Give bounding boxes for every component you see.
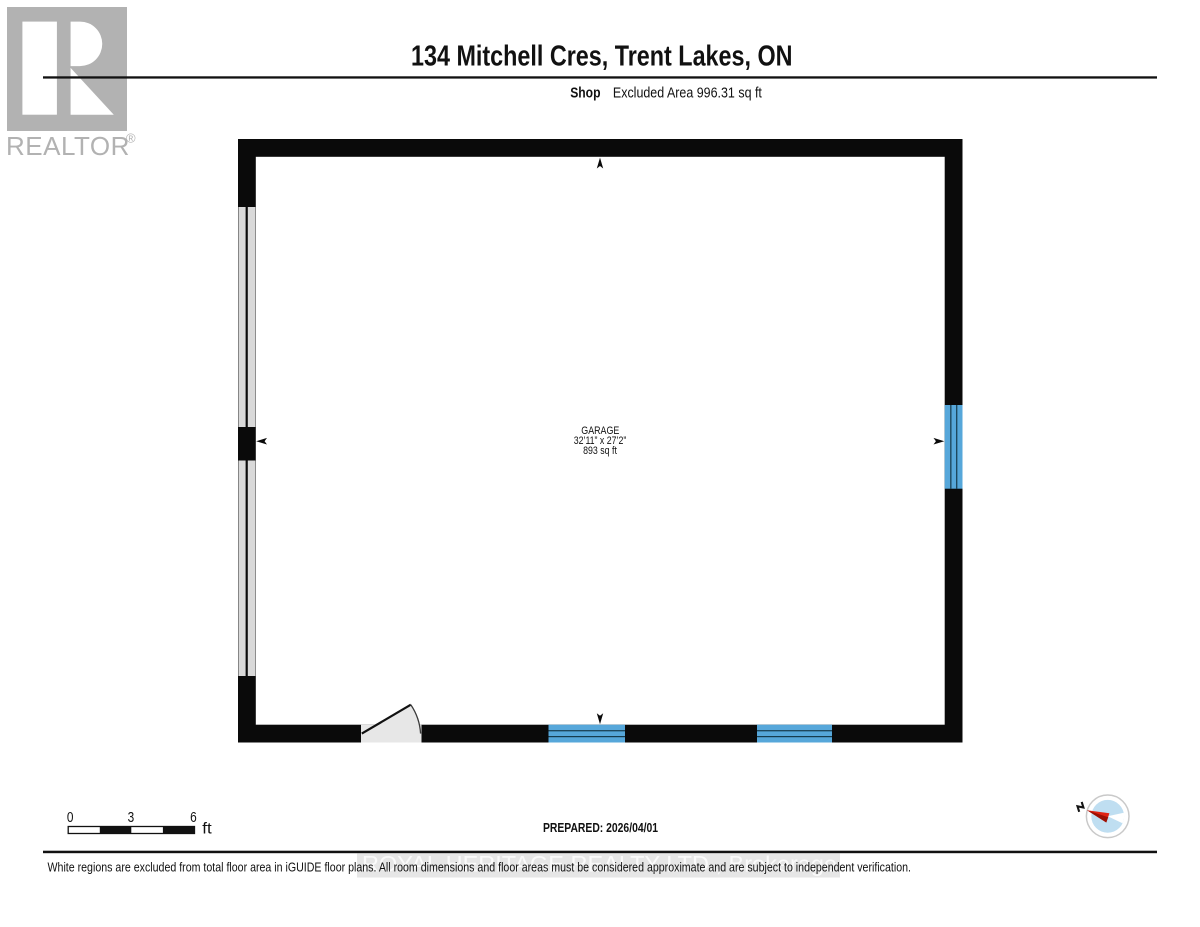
svg-text:Excluded Area 996.31 sq ft: Excluded Area 996.31 sq ft: [613, 86, 762, 102]
svg-text:ft: ft: [202, 821, 212, 838]
svg-text:134 Mitchell Cres, Trent Lakes: 134 Mitchell Cres, Trent Lakes, ON: [411, 40, 793, 72]
svg-text:6: 6: [190, 810, 197, 826]
svg-text:Shop: Shop: [570, 86, 601, 102]
svg-text:PREPARED: 2026/04/01: PREPARED: 2026/04/01: [543, 820, 658, 835]
svg-text:White regions are excluded fro: White regions are excluded from total fl…: [48, 860, 912, 875]
svg-text:3: 3: [128, 810, 135, 826]
svg-text:®: ®: [126, 131, 136, 146]
svg-text:893 sq ft: 893 sq ft: [583, 445, 617, 457]
svg-text:0: 0: [67, 810, 74, 826]
svg-text:REALTOR: REALTOR: [6, 131, 130, 161]
